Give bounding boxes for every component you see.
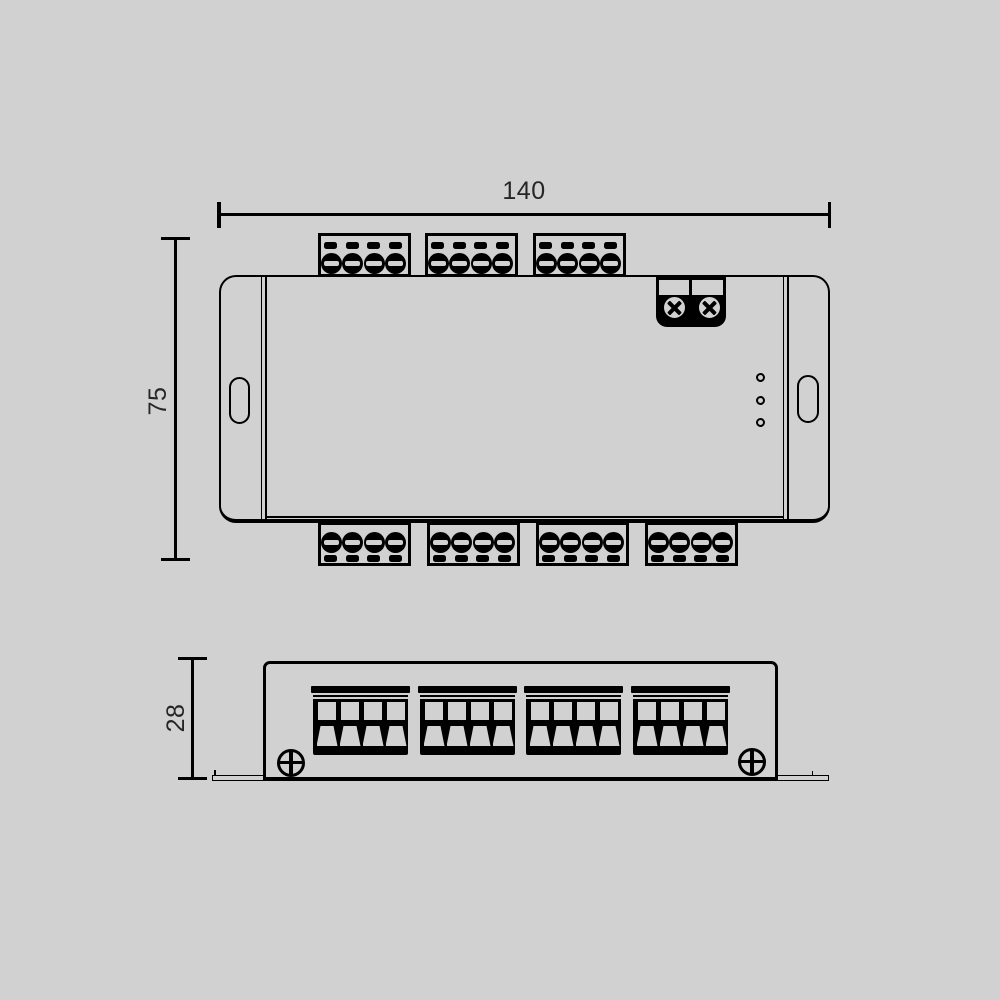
wire-slot [564,555,577,562]
screw-slot-mark [584,540,600,545]
terminal-window [471,702,489,720]
screw-slot-mark [473,261,489,266]
wire-opening [447,726,468,746]
dimension-height-tick-top [161,237,190,241]
block-upper-row [633,699,728,723]
screw-slot-mark [345,540,361,545]
block-base [420,746,515,755]
terminal-screw-icon [492,253,513,274]
terminal-block-front [420,686,515,755]
terminal-screw-icon [385,253,406,274]
terminal-screw-icon [600,253,621,274]
terminal-window [364,702,382,720]
terminal-block-front [313,686,408,755]
terminal-window [387,702,405,720]
wire-opening [424,726,445,746]
wire-opening [530,726,551,746]
flange-lip-left [214,770,216,776]
wire-slot [539,242,552,249]
terminal-screw-icon [428,253,449,274]
block-upper-row [313,699,408,723]
mounting-slot-right [797,375,819,423]
wire-slot [455,555,468,562]
terminal-screw-icon [539,532,560,553]
terminal-screw-icon [691,532,712,553]
terminal-screw-icon [364,253,385,274]
wire-opening [340,726,361,746]
screw-slot-mark [345,261,361,266]
fold-line-left-inner [265,277,267,519]
block-cap-line [633,695,728,697]
block-lower-row [633,723,728,747]
wire-slot [346,555,359,562]
terminal-screw-icon [342,253,363,274]
screw-slot-mark [324,540,340,545]
terminal-window [318,702,336,720]
terminal-screw-icon [712,532,733,553]
block-base [313,746,408,755]
screw-slot-mark [495,261,511,266]
fold-line-right-inner [783,277,785,519]
screw-slot-mark [388,540,404,545]
block-upper-row [420,699,515,723]
screw-slot-mark [693,540,709,545]
terminal-window [425,702,443,720]
screw-slot-mark [431,261,447,266]
screw-slot-mark [324,261,340,266]
wire-opening [660,726,681,746]
mounting-flange-left [212,775,264,782]
wire-slot [346,242,359,249]
terminal-window [684,702,702,720]
dimension-height-tick-bottom [161,558,190,562]
screw-slot-mark [388,261,404,266]
block-cap [524,686,623,693]
screw-slot-mark [454,540,470,545]
terminal-block [645,522,738,566]
wire-opening [470,726,491,746]
terminal-window [554,702,572,720]
terminal-screw-icon [321,253,342,274]
dimension-depth-tick-bottom [178,777,207,781]
wire-slot [433,555,446,562]
screw-slot-mark [560,261,576,266]
enclosure-inner-edge [266,516,783,518]
technical-drawing: 140 75 28 [0,0,1000,1000]
block-lower-row [313,723,408,747]
mount-screw-icon-right [738,748,766,776]
wire-slot [431,242,444,249]
screw-slot-mark [672,540,688,545]
wire-slot [496,242,509,249]
wire-slot [498,555,511,562]
mount-screw-icon-left [277,749,305,777]
terminal-screw-icon [451,532,472,553]
mounting-flange-right [777,775,829,782]
terminal-block [533,233,626,277]
terminal-screw-icon [321,532,342,553]
block-lower-row [526,723,621,747]
terminal-block-front [633,686,728,755]
block-cap [631,686,730,693]
dimension-height-line [174,238,177,560]
terminal-block [318,233,411,277]
wire-slot [542,555,555,562]
screw-slot-mark [715,540,731,545]
enclosure-outline [219,275,830,523]
screw-slot-mark [539,261,555,266]
terminal-screw-icon [471,253,492,274]
fold-line-left-outer [261,277,263,519]
wire-opening [317,726,338,746]
wire-opening [706,726,727,746]
terminal-screw-icon [449,253,470,274]
block-cap-line [526,695,621,697]
screw-slot-mark [366,540,382,545]
terminal-screw-icon [579,253,600,274]
wire-slot [694,555,707,562]
block-base [526,746,621,755]
terminal-screw-icon [385,532,406,553]
wire-slot [673,555,686,562]
wire-opening [553,726,574,746]
flange-lip-right [812,771,814,776]
wire-slot [582,242,595,249]
led-indicator [756,373,765,382]
terminal-screw-icon [557,253,578,274]
terminal-window [494,702,512,720]
screw-slot-mark [366,261,382,266]
screw-slot-mark [651,540,667,545]
wire-slot [474,242,487,249]
dimension-depth-label: 28 [162,688,190,748]
terminal-window [661,702,679,720]
block-lower-row [420,723,515,747]
wire-slot [585,555,598,562]
wire-slot [716,555,729,562]
dimension-width-label: 140 [223,177,825,205]
screw-slot-mark [606,540,622,545]
terminal-block [318,522,411,566]
terminal-window [600,702,618,720]
wire-opening [576,726,597,746]
terminal-screw-icon [669,532,690,553]
terminal-screw-icon [364,532,385,553]
screw-slot-mark [475,540,491,545]
terminal-screw-icon [342,532,363,553]
power-screw-icon [697,295,722,320]
terminal-screw-icon [560,532,581,553]
block-cap-line [420,695,515,697]
wire-opening [683,726,704,746]
wire-slot [324,555,337,562]
screw-slot-mark [433,540,449,545]
wire-slot [561,242,574,249]
wire-slot [389,242,402,249]
terminal-window [341,702,359,720]
screw-slot-mark [452,261,468,266]
terminal-screw-icon [473,532,494,553]
wire-slot [607,555,620,562]
terminal-block [536,522,629,566]
wire-slot [453,242,466,249]
dimension-depth-tick-top [178,657,207,661]
terminal-screw-icon [603,532,624,553]
terminal-window [707,702,725,720]
terminal-window [638,702,656,720]
terminal-window [448,702,466,720]
wire-slot [324,242,337,249]
terminal-screw-icon [430,532,451,553]
power-terminal [656,277,726,327]
dimension-width-tick-right [828,202,832,228]
wire-opening [637,726,658,746]
wire-opening [386,726,407,746]
screw-slot-mark [497,540,513,545]
block-upper-row [526,699,621,723]
screw-slot-mark [581,261,597,266]
mounting-slot-left [229,377,250,424]
wire-slot [651,555,664,562]
block-cap-line [313,695,408,697]
block-cap [311,686,410,693]
terminal-block [427,522,520,566]
block-cap [418,686,517,693]
dimension-width-tick-left [217,202,221,228]
dimension-width-line [218,213,830,216]
wire-slot [389,555,402,562]
block-base [633,746,728,755]
screw-slot-mark [563,540,579,545]
led-indicator [756,418,765,427]
terminal-screw-icon [494,532,515,553]
wire-slot [367,555,380,562]
wire-opening [599,726,620,746]
wire-slot [476,555,489,562]
led-indicator [756,396,765,405]
power-screw-icon [662,295,687,320]
dimension-height-label: 75 [144,371,172,431]
terminal-block-front [526,686,621,755]
power-terminal-divider [689,280,692,296]
wire-slot [367,242,380,249]
terminal-screw-icon [648,532,669,553]
wire-opening [363,726,384,746]
terminal-window [577,702,595,720]
power-terminal-body [659,295,723,324]
terminal-window [531,702,549,720]
terminal-screw-icon [582,532,603,553]
screw-slot-mark [603,261,619,266]
dimension-depth-line [191,659,194,779]
wire-slot [604,242,617,249]
screw-slot-mark [542,540,558,545]
fold-line-right-outer [787,277,789,519]
terminal-block [425,233,518,277]
wire-opening [493,726,514,746]
terminal-screw-icon [536,253,557,274]
